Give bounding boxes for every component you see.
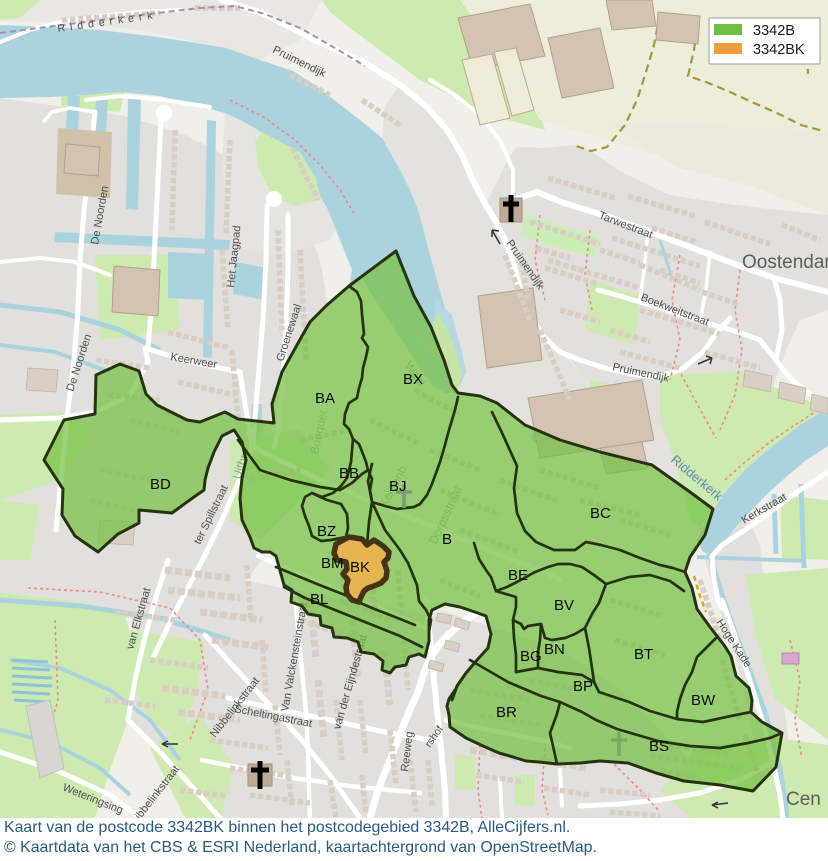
- svg-text:BR: BR: [496, 704, 517, 721]
- svg-text:BZ: BZ: [317, 523, 336, 540]
- svg-text:BA: BA: [315, 390, 335, 407]
- svg-text:BD: BD: [150, 476, 171, 493]
- svg-text:BB: BB: [339, 465, 359, 482]
- svg-text:BS: BS: [649, 738, 669, 755]
- svg-text:BC: BC: [590, 505, 611, 522]
- svg-text:3342BK: 3342BK: [753, 42, 805, 58]
- svg-text:BW: BW: [691, 692, 716, 709]
- svg-text:BM: BM: [321, 555, 344, 572]
- svg-text:BN: BN: [544, 641, 565, 658]
- svg-text:© Kaartdata van het CBS & ESRI: © Kaartdata van het CBS & ESRI Nederland…: [4, 839, 597, 856]
- svg-text:BT: BT: [634, 646, 653, 663]
- svg-text:BG: BG: [520, 648, 542, 665]
- svg-text:Cen: Cen: [786, 789, 821, 810]
- svg-text:BP: BP: [573, 678, 593, 695]
- svg-text:BX: BX: [403, 371, 423, 388]
- svg-text:BV: BV: [554, 597, 574, 614]
- svg-text:3342B: 3342B: [753, 23, 795, 39]
- svg-text:BK: BK: [350, 559, 370, 576]
- svg-text:Kaart van de postcode 3342BK b: Kaart van de postcode 3342BK binnen het …: [4, 819, 570, 836]
- svg-text:BL: BL: [310, 591, 328, 608]
- svg-text:Oostendam: Oostendam: [742, 252, 828, 273]
- svg-text:BE: BE: [508, 567, 528, 584]
- svg-text:B: B: [442, 531, 452, 548]
- svg-text:BJ: BJ: [389, 478, 407, 495]
